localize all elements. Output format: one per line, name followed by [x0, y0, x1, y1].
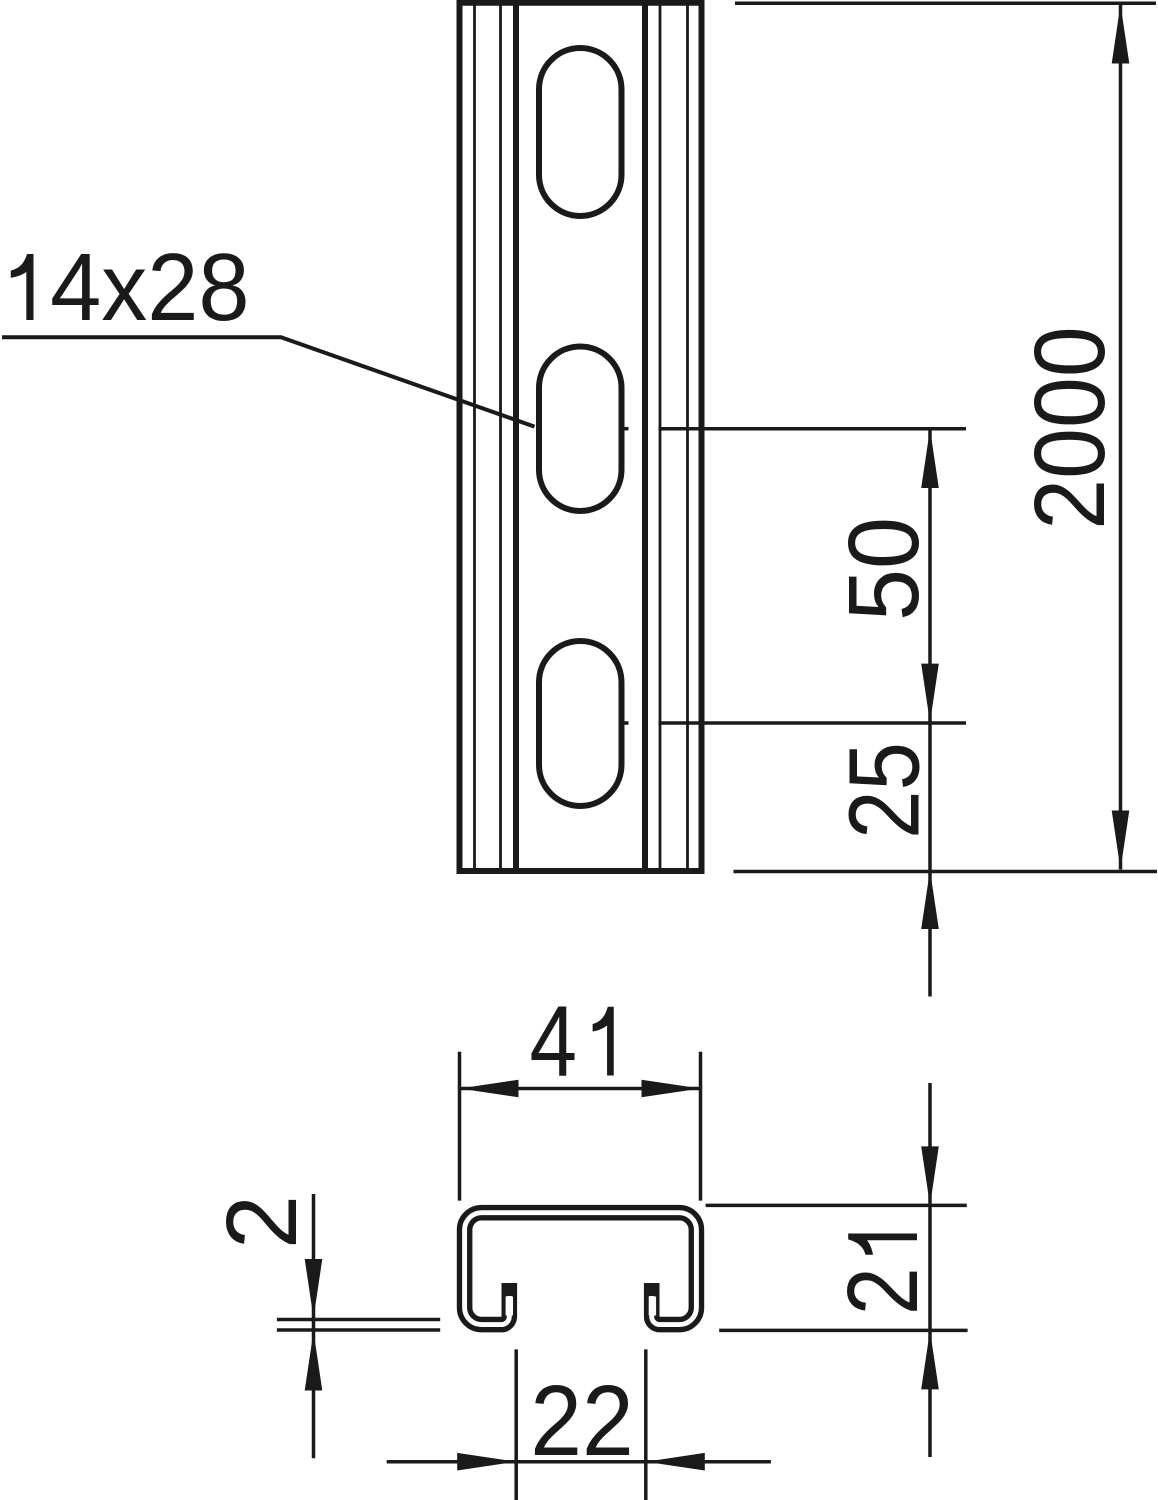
- svg-text:2: 2: [827, 1267, 939, 1315]
- svg-text:4x28: 4x28: [50, 233, 249, 340]
- svg-text:2: 2: [206, 1195, 318, 1249]
- svg-text:25: 25: [828, 742, 940, 839]
- svg-text:22: 22: [530, 1366, 633, 1477]
- svg-text:2000: 2000: [1014, 326, 1126, 530]
- svg-text:50: 50: [827, 517, 940, 621]
- svg-text:4: 4: [529, 985, 577, 1097]
